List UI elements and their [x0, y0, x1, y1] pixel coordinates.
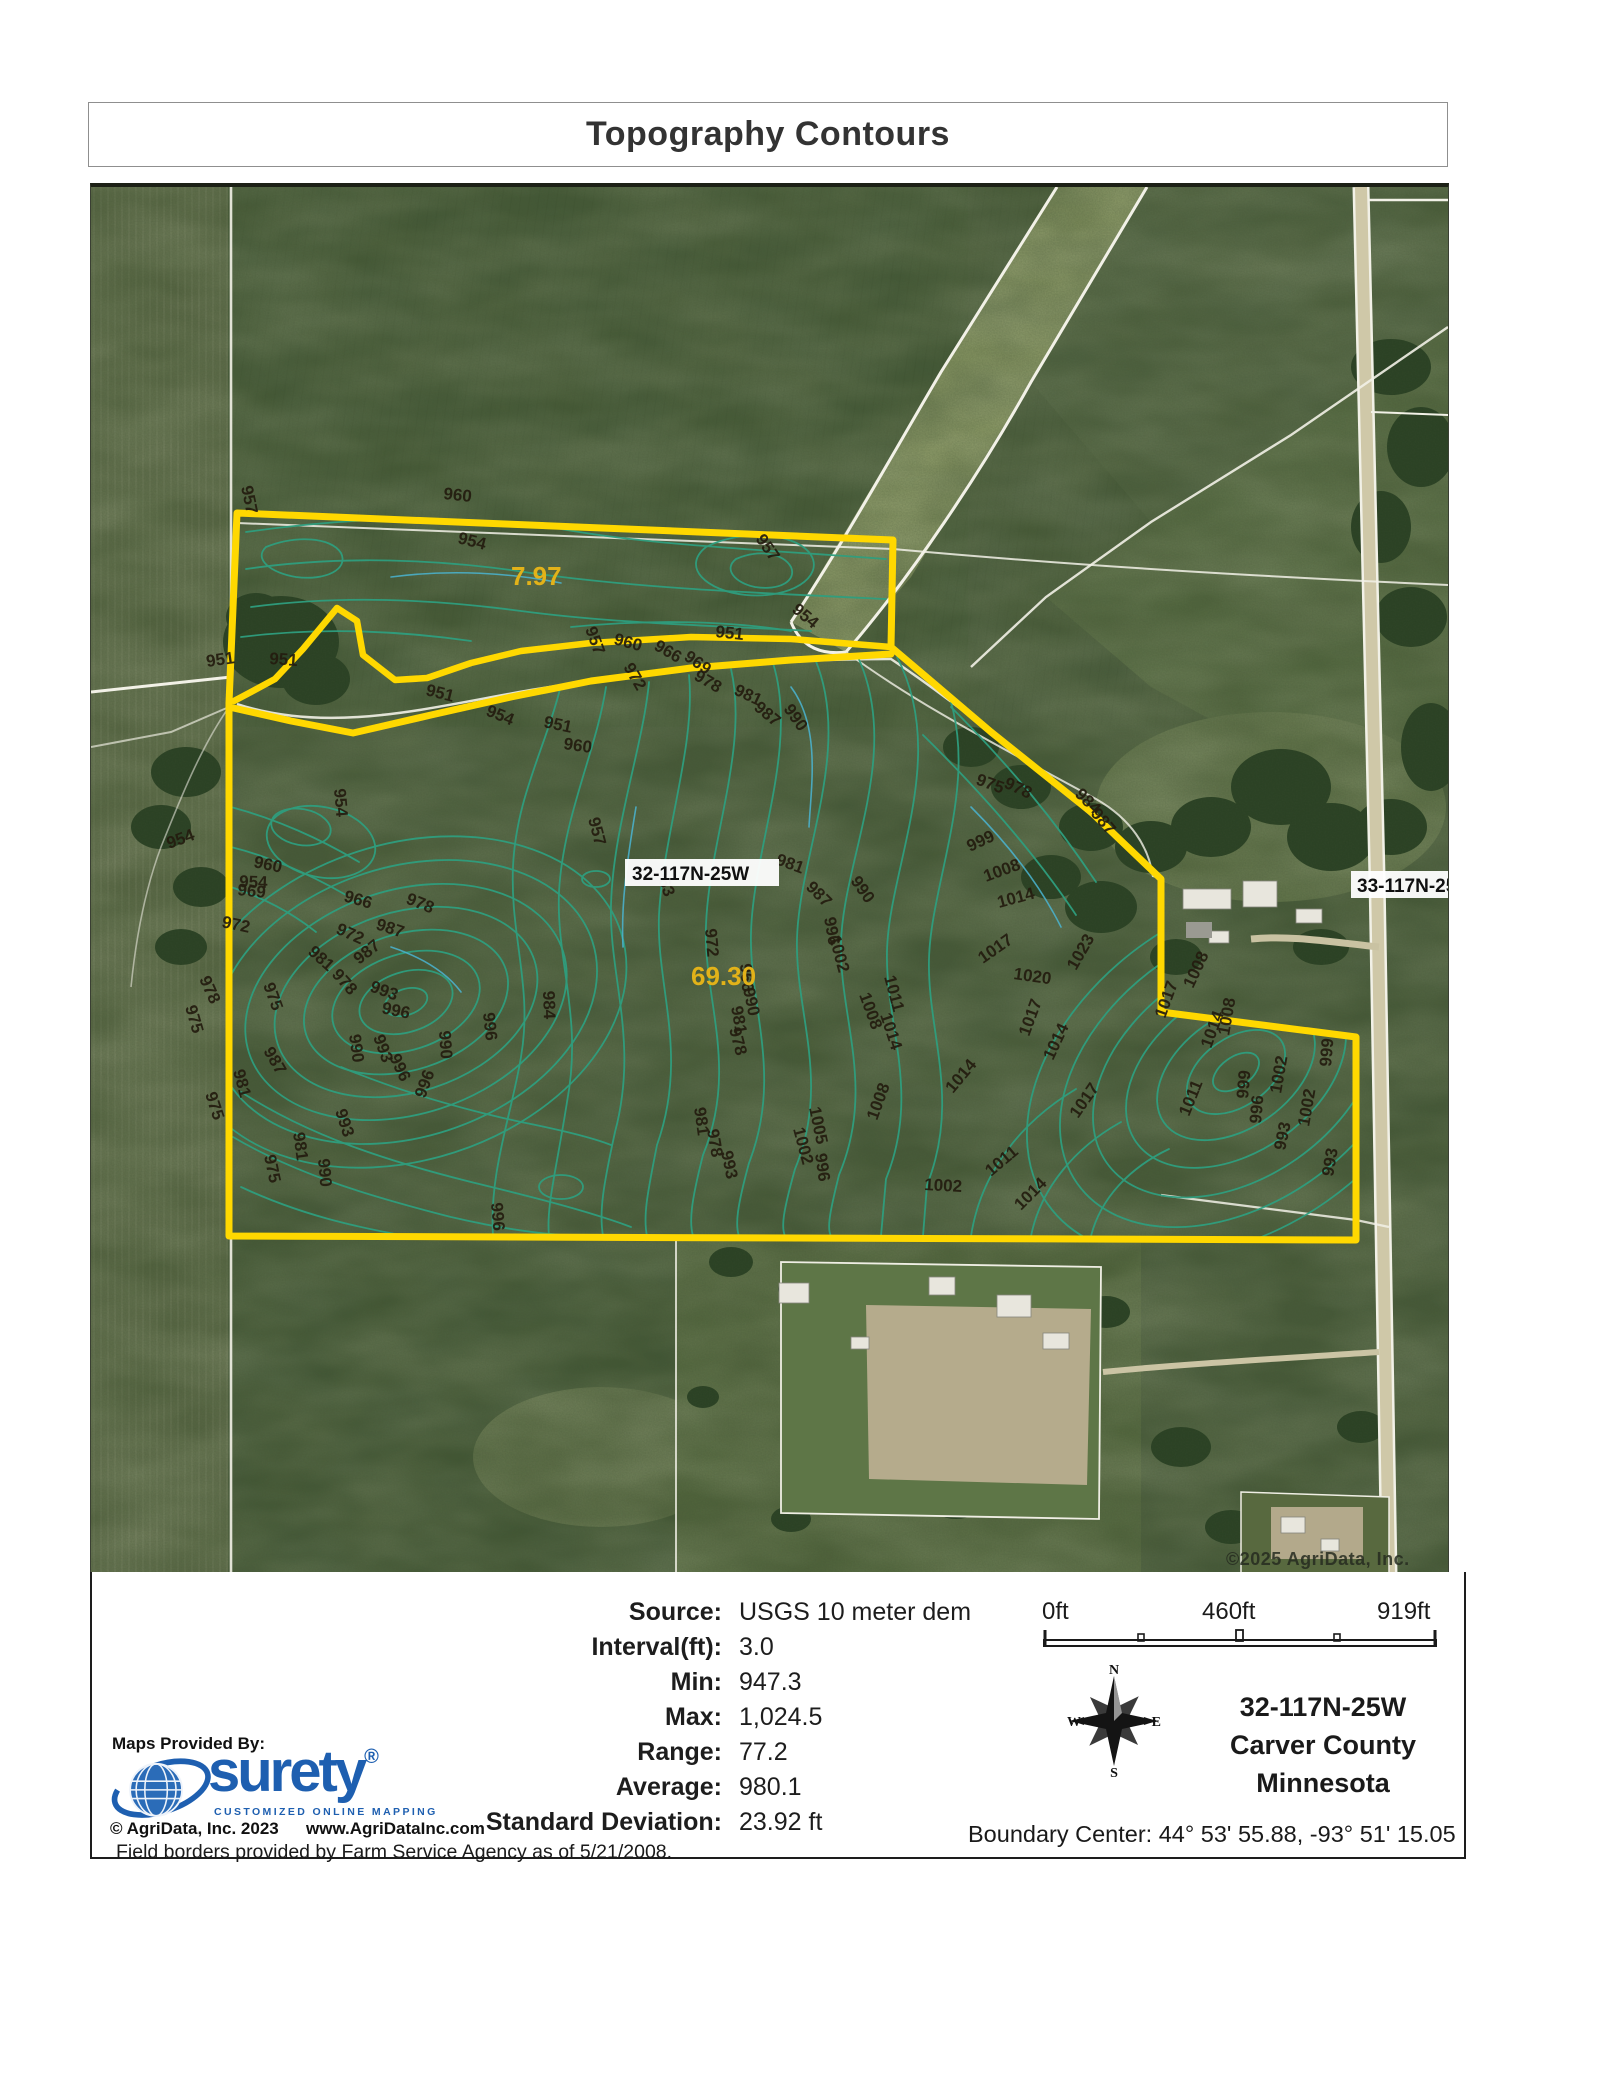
contour-elevation-label: 951	[269, 649, 299, 670]
contour-elevation-label: 996	[487, 1202, 508, 1232]
compass-n: N	[1109, 1664, 1119, 1678]
location-county: Carver County	[1188, 1726, 1458, 1764]
contour-elevation-label: 990	[345, 1033, 368, 1064]
compass-rose: N S W E	[1064, 1664, 1164, 1778]
contour-elevation-label: 996	[479, 1011, 501, 1041]
stat-value: 947.3	[739, 1668, 802, 1697]
svg-text:33-117N-25W: 33-117N-25W	[1357, 876, 1448, 897]
stat-label: Min:	[230, 1668, 722, 1697]
contour-elevation-label: 954	[330, 788, 351, 818]
township-label-left: 32-117N-25W	[625, 859, 779, 886]
contour-elevation-label: 990	[314, 1158, 335, 1188]
location-township: 32-117N-25W	[1188, 1688, 1458, 1726]
boundary-center-text: Boundary Center: 44° 53' 55.88, -93° 51'…	[968, 1821, 1468, 1848]
stat-row: Interval(ft):3.0	[230, 1633, 971, 1668]
stat-row: Max:1,024.5	[230, 1703, 971, 1738]
scalebar	[1042, 1628, 1442, 1652]
contour-elevation-label: 990	[435, 1030, 456, 1060]
surety-globe-icon	[108, 1750, 218, 1828]
page-title: Topography Contours	[89, 103, 1447, 165]
agridata-copyright: © AgriData, Inc. 2023	[110, 1819, 279, 1839]
compass-w: W	[1067, 1715, 1081, 1730]
surety-wordmark: surety®	[208, 1738, 379, 1805]
location-state: Minnesota	[1188, 1764, 1458, 1802]
stat-label: Max:	[230, 1703, 722, 1732]
contour-elevation-label: 972	[701, 928, 722, 958]
parcel-acres-label-north: 7.97	[511, 561, 562, 591]
footer-panel: Source:USGS 10 meter dem Interval(ft):3.…	[90, 1572, 1466, 1859]
contour-elevation-label: 960	[562, 734, 593, 757]
topography-map: 9579609549579549519519519519549519549549…	[90, 183, 1449, 1577]
stat-label: Interval(ft):	[230, 1633, 722, 1662]
stat-value: 980.1	[739, 1773, 802, 1802]
aerial-map-canvas: 9579609549579549519519519519549519549549…	[91, 187, 1448, 1576]
scalebar-labels: 0ft 460ft 919ft	[1042, 1598, 1442, 1624]
contour-elevation-label: 996	[1246, 1094, 1267, 1124]
contour-elevation-label: 969	[237, 880, 267, 902]
scalebar-label-end: 919ft	[1377, 1598, 1430, 1626]
field-borders-note: Field borders provided by Farm Service A…	[116, 1841, 672, 1864]
surety-logo: surety® CUSTOMIZED ONLINE MAPPING	[108, 1750, 588, 1820]
imagery-copyright-watermark: ©2025 AgriData, Inc.	[1226, 1549, 1410, 1569]
stat-row: Min:947.3	[230, 1668, 971, 1703]
contour-elevation-label: 981	[690, 1106, 713, 1137]
stat-row: Source:USGS 10 meter dem	[230, 1598, 971, 1633]
contour-elevation-label: 960	[443, 484, 473, 506]
contour-elevation-label: 1002	[924, 1175, 963, 1196]
topography-report-page: { "page": { "title": "Topography Contour…	[0, 0, 1607, 2080]
title-box: Topography Contours	[88, 102, 1448, 167]
contour-elevation-label: 981	[289, 1131, 312, 1162]
township-label-right: 33-117N-25W	[1351, 871, 1448, 898]
registered-mark: ®	[364, 1746, 379, 1768]
stat-label: Source:	[230, 1598, 722, 1627]
contour-elevation-label: 951	[205, 648, 236, 671]
compass-e: E	[1152, 1715, 1161, 1730]
location-block: 32-117N-25W Carver County Minnesota	[1188, 1688, 1458, 1802]
stat-value: 77.2	[739, 1738, 788, 1767]
contour-elevation-label: 996	[811, 1152, 834, 1183]
agridata-website: www.AgriDataInc.com	[306, 1819, 485, 1839]
stat-value: 1,024.5	[739, 1703, 822, 1732]
contour-elevation-label: 999	[1316, 1037, 1337, 1067]
stat-value: 23.92 ft	[739, 1808, 822, 1837]
stat-value: 3.0	[739, 1633, 774, 1662]
svg-text:32-117N-25W: 32-117N-25W	[632, 864, 749, 885]
contour-elevation-label: 984	[539, 990, 559, 1020]
scalebar-label-0: 0ft	[1042, 1598, 1069, 1626]
surety-tagline: CUSTOMIZED ONLINE MAPPING	[214, 1806, 438, 1818]
contour-elevation-label: 951	[715, 622, 745, 644]
scalebar-label-mid: 460ft	[1202, 1598, 1255, 1626]
stat-value: USGS 10 meter dem	[739, 1598, 971, 1627]
compass-s: S	[1110, 1766, 1118, 1778]
parcel-acres-label-main: 69.30	[691, 961, 756, 991]
